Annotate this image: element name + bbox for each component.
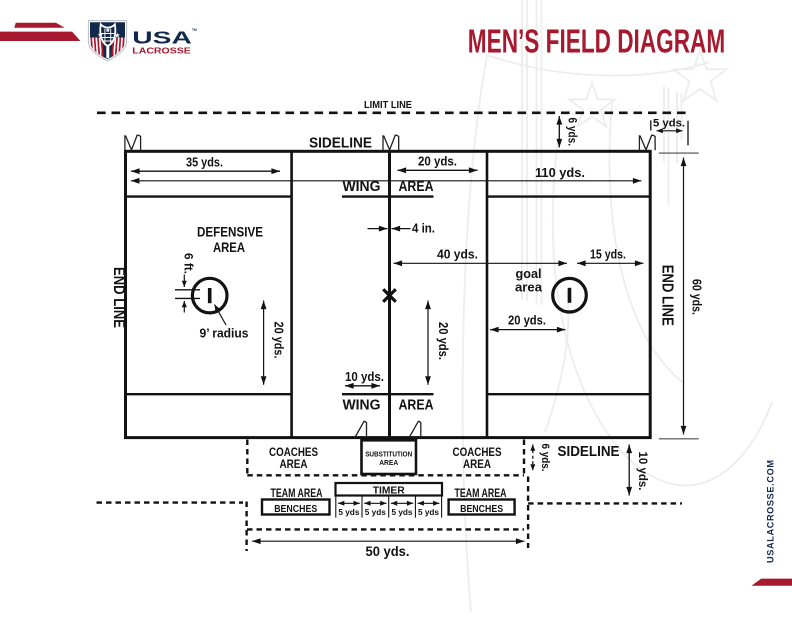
svg-text:LIMIT LINE: LIMIT LINE [364,99,412,111]
svg-text:BENCHES: BENCHES [460,503,503,515]
svg-text:5 yds: 5 yds [392,508,414,517]
svg-text:5 yds: 5 yds [365,508,387,517]
svg-text:AREA: AREA [399,398,434,414]
svg-text:20 yds.: 20 yds. [436,322,450,360]
svg-text:6 yds.: 6 yds. [565,118,577,147]
svg-text:TM: TM [192,28,197,32]
svg-text:10 yds.: 10 yds. [636,452,650,491]
svg-text:TEAM AREA: TEAM AREA [455,488,507,500]
svg-text:LACROSSE: LACROSSE [132,47,191,56]
svg-text:35 yds.: 35 yds. [186,156,223,170]
svg-text:USALACROSSE.COM: USALACROSSE.COM [766,460,776,563]
svg-text:40 yds.: 40 yds. [437,248,478,262]
svg-text:COACHES: COACHES [269,447,318,459]
svg-text:15 yds.: 15 yds. [590,248,626,262]
svg-text:AREA: AREA [280,459,308,471]
svg-text:TEAM AREA: TEAM AREA [271,488,323,500]
svg-text:6 yds.: 6 yds. [539,444,551,472]
svg-text:END LINE: END LINE [658,265,675,326]
svg-text:AREA: AREA [213,239,245,255]
svg-text:area: area [515,281,543,295]
svg-text:SIDELINE: SIDELINE [558,443,620,460]
svg-text:USA: USA [132,27,192,47]
svg-text:COACHES: COACHES [453,447,502,459]
svg-text:20 yds.: 20 yds. [508,314,546,328]
svg-text:6 ft.: 6 ft. [182,253,196,274]
svg-text:110 yds.: 110 yds. [535,166,585,180]
svg-text:MEN’S FIELD DIAGRAM: MEN’S FIELD DIAGRAM [468,23,725,60]
svg-text:END LINE: END LINE [110,267,127,328]
svg-text:SIDELINE: SIDELINE [309,135,372,152]
svg-text:5 yds.: 5 yds. [653,118,685,130]
svg-text:60 yds.: 60 yds. [690,279,704,315]
svg-text:10 yds.: 10 yds. [345,370,384,384]
svg-text:5 yds: 5 yds [338,508,360,517]
svg-text:AREA: AREA [379,458,399,467]
svg-text:goal: goal [516,267,542,281]
svg-text:AREA: AREA [463,459,491,471]
svg-text:4 in.: 4 in. [412,222,435,236]
svg-text:9’ radius: 9’ radius [200,327,249,341]
svg-text:AREA: AREA [399,179,434,195]
svg-text:50 yds.: 50 yds. [366,544,410,559]
svg-text:BENCHES: BENCHES [274,503,317,515]
svg-text:WING: WING [343,179,381,195]
svg-text:5 yds: 5 yds [418,508,440,517]
svg-text:20 yds.: 20 yds. [418,154,457,168]
svg-text:TIMER: TIMER [373,484,405,496]
svg-text:DEFENSIVE: DEFENSIVE [197,223,263,239]
svg-text:WING: WING [343,398,381,414]
svg-text:20 yds.: 20 yds. [272,322,286,359]
